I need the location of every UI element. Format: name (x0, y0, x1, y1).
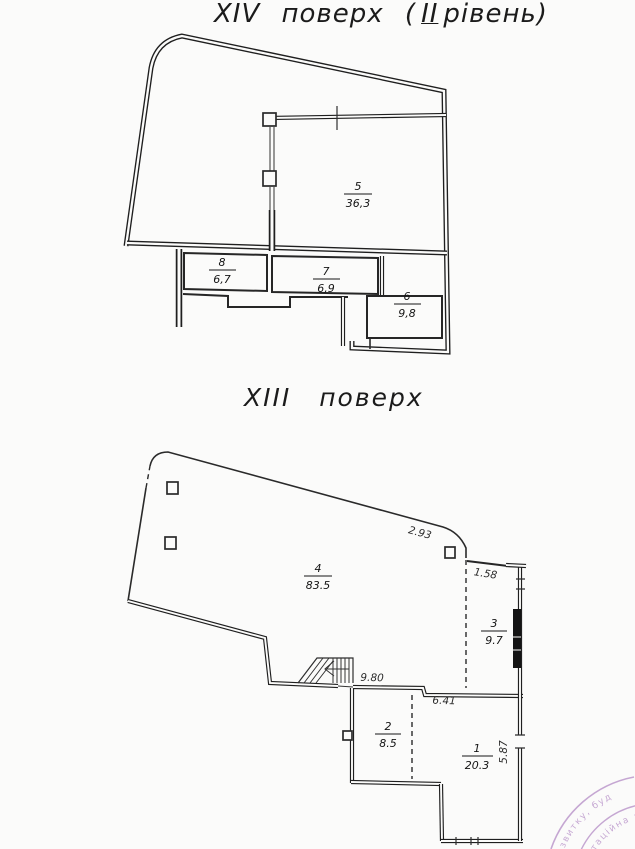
room7-label: 7 6,9 (313, 265, 340, 295)
room7-area: 6,9 (317, 282, 335, 295)
floorplan-drawing: 5 36,3 8 6,7 7 6,9 6 9,8 (0, 0, 635, 849)
outer-wall (126, 36, 448, 352)
stair-door-sill (338, 686, 353, 687)
room8-area: 6,7 (213, 273, 231, 286)
room8-number: 8 (219, 256, 226, 269)
plan-floor14: 5 36,3 8 6,7 7 6,9 6 9,8 (126, 36, 448, 352)
dim-room1-right: 5.87 (498, 740, 510, 764)
room5-area: 36,3 (346, 197, 371, 210)
stamp-inner-text: таційна з (589, 811, 635, 849)
room6-area: 9,8 (398, 307, 416, 320)
room6-number: 6 (404, 290, 411, 303)
dim-top-edge: 2.93 (407, 524, 433, 542)
window-line (270, 127, 274, 171)
room4-label: 4 83.5 (304, 562, 332, 592)
stair-steps (333, 658, 349, 683)
room3-label: 3 9.7 (481, 617, 507, 647)
column (167, 482, 178, 494)
room2-number: 2 (385, 720, 392, 733)
room1-left-step-wall-inner (441, 784, 442, 841)
wall-notch (343, 731, 352, 740)
room1-area: 20.3 (465, 759, 490, 772)
right-wall-window-gap (516, 735, 525, 748)
stamp-inner-textpath: таційна з (589, 811, 635, 849)
wall-shaft-bar (513, 609, 521, 668)
room4-number: 4 (315, 562, 322, 575)
room6-label: 6 9,8 (394, 290, 421, 320)
left-edge (128, 488, 146, 601)
column (263, 113, 276, 126)
southwest-wall-inner (128, 601, 338, 686)
dim-stair-wall: 9.80 (360, 672, 384, 685)
opening-line (270, 187, 274, 210)
room1-label: 1 20.3 (462, 742, 493, 772)
dim-room1-top: 6.41 (432, 695, 456, 708)
room3-top-wall (467, 561, 508, 566)
room5-label: 5 36,3 (344, 180, 372, 210)
column (263, 171, 276, 186)
dim-room3-top: 1.58 (473, 566, 498, 582)
column (165, 537, 176, 549)
stair-hatch (304, 658, 333, 683)
room2-label: 2 8.5 (375, 720, 401, 750)
room3-area: 9.7 (485, 634, 503, 647)
room2-area: 8.5 (379, 737, 397, 750)
room3-number: 3 (491, 617, 498, 630)
top-edge (150, 452, 466, 558)
room5-number: 5 (355, 180, 362, 193)
plan-floor13: 4 83.5 3 9.7 2 8.5 1 20.3 2.93 1.58 (128, 452, 526, 845)
room8-label: 8 6,7 (209, 256, 236, 286)
scanned-floorplan-page: XIV поверх (ІІрівень) XIII поверх (0, 0, 635, 849)
section-wall-inner (127, 243, 447, 253)
staircase (298, 658, 353, 683)
corridor-boundary (183, 294, 348, 307)
left-edge-window (146, 466, 150, 488)
room4-area: 83.5 (306, 579, 331, 592)
southwest-wall (128, 601, 338, 686)
room1-number: 1 (474, 742, 481, 755)
column (445, 547, 455, 558)
right-top-stub-inner (506, 565, 526, 566)
room7-number: 7 (323, 265, 330, 278)
stamp: звитку, буд таційна з (551, 777, 635, 849)
